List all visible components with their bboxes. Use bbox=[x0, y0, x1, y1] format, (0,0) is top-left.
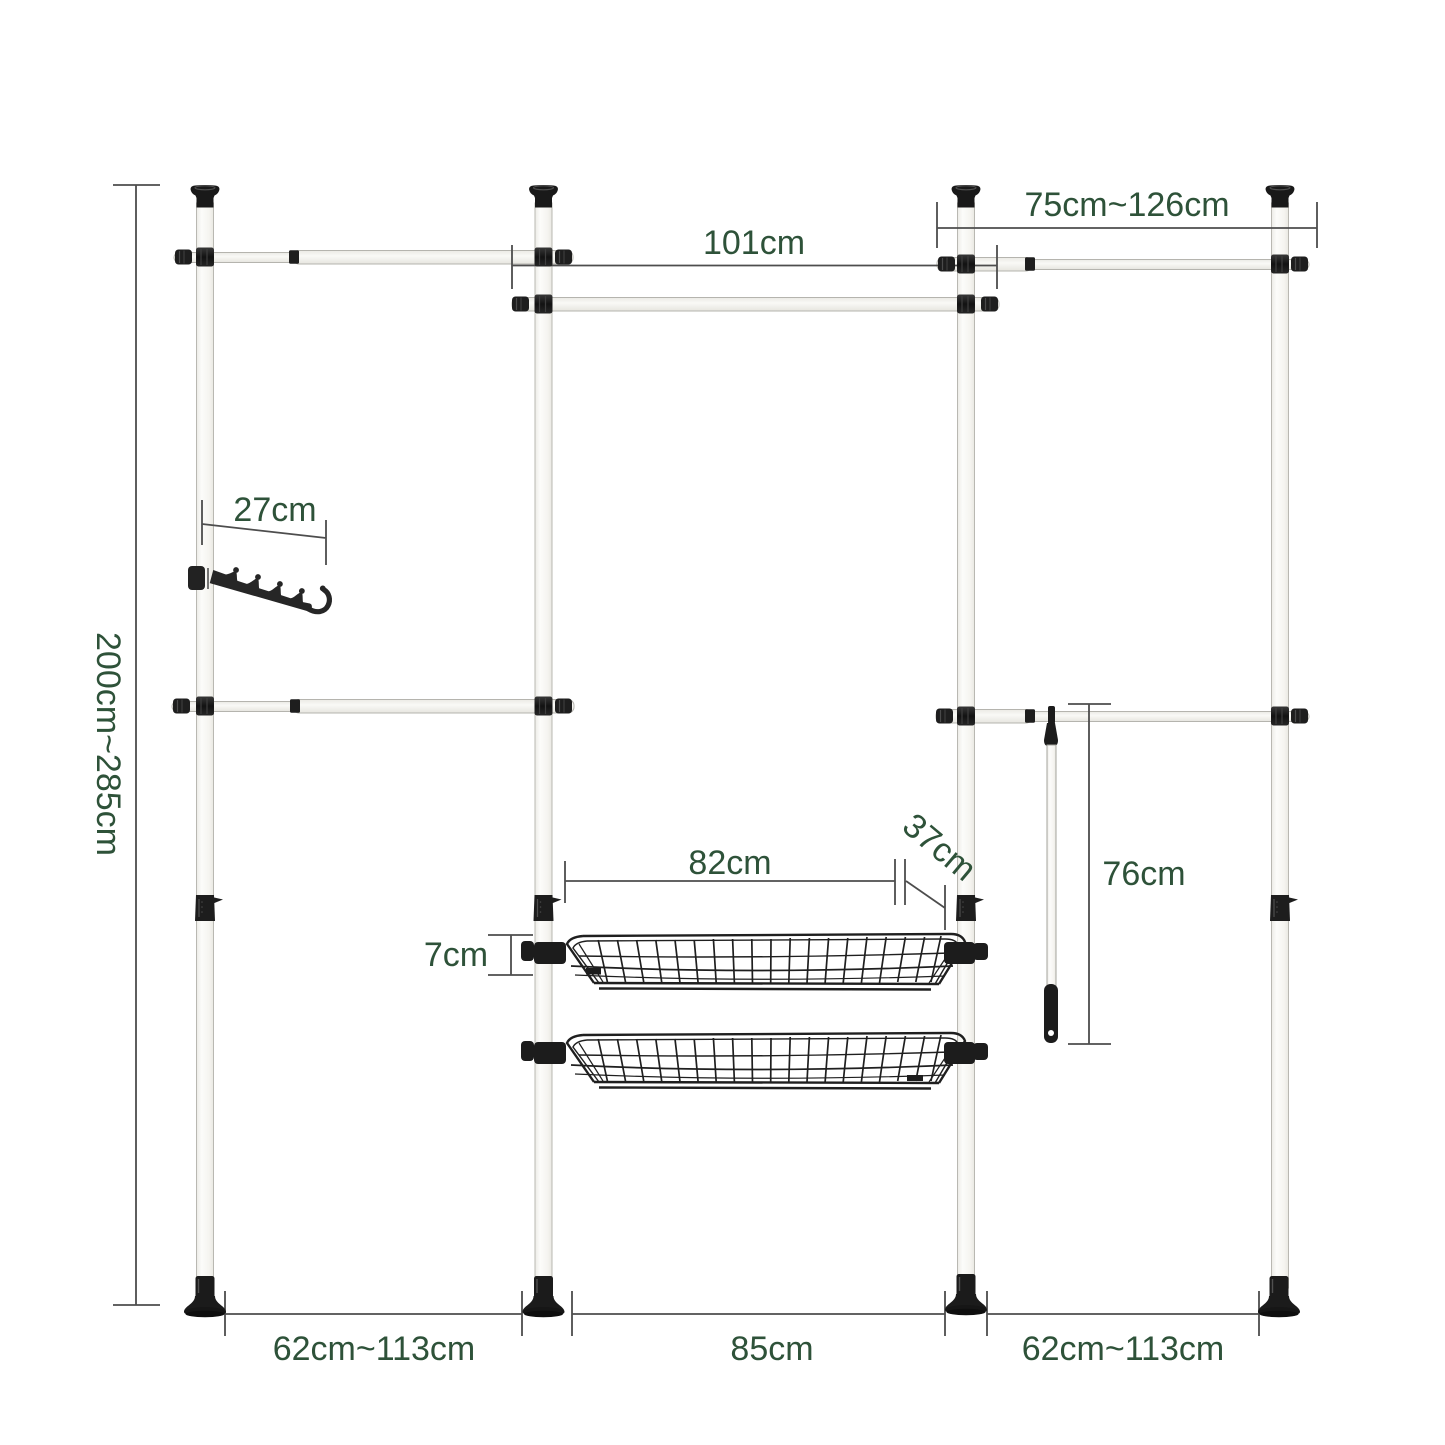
svg-text:82cm: 82cm bbox=[688, 844, 771, 882]
svg-text:62cm~113cm: 62cm~113cm bbox=[1022, 1330, 1225, 1368]
svg-text:101cm: 101cm bbox=[703, 224, 805, 262]
svg-text:200cm~285cm: 200cm~285cm bbox=[89, 632, 127, 856]
svg-text:62cm~113cm: 62cm~113cm bbox=[273, 1330, 476, 1368]
svg-text:76cm: 76cm bbox=[1102, 855, 1185, 893]
svg-text:85cm: 85cm bbox=[730, 1330, 813, 1368]
svg-text:27cm: 27cm bbox=[233, 491, 316, 529]
svg-text:7cm: 7cm bbox=[424, 936, 488, 974]
svg-text:75cm~126cm: 75cm~126cm bbox=[1024, 186, 1229, 224]
